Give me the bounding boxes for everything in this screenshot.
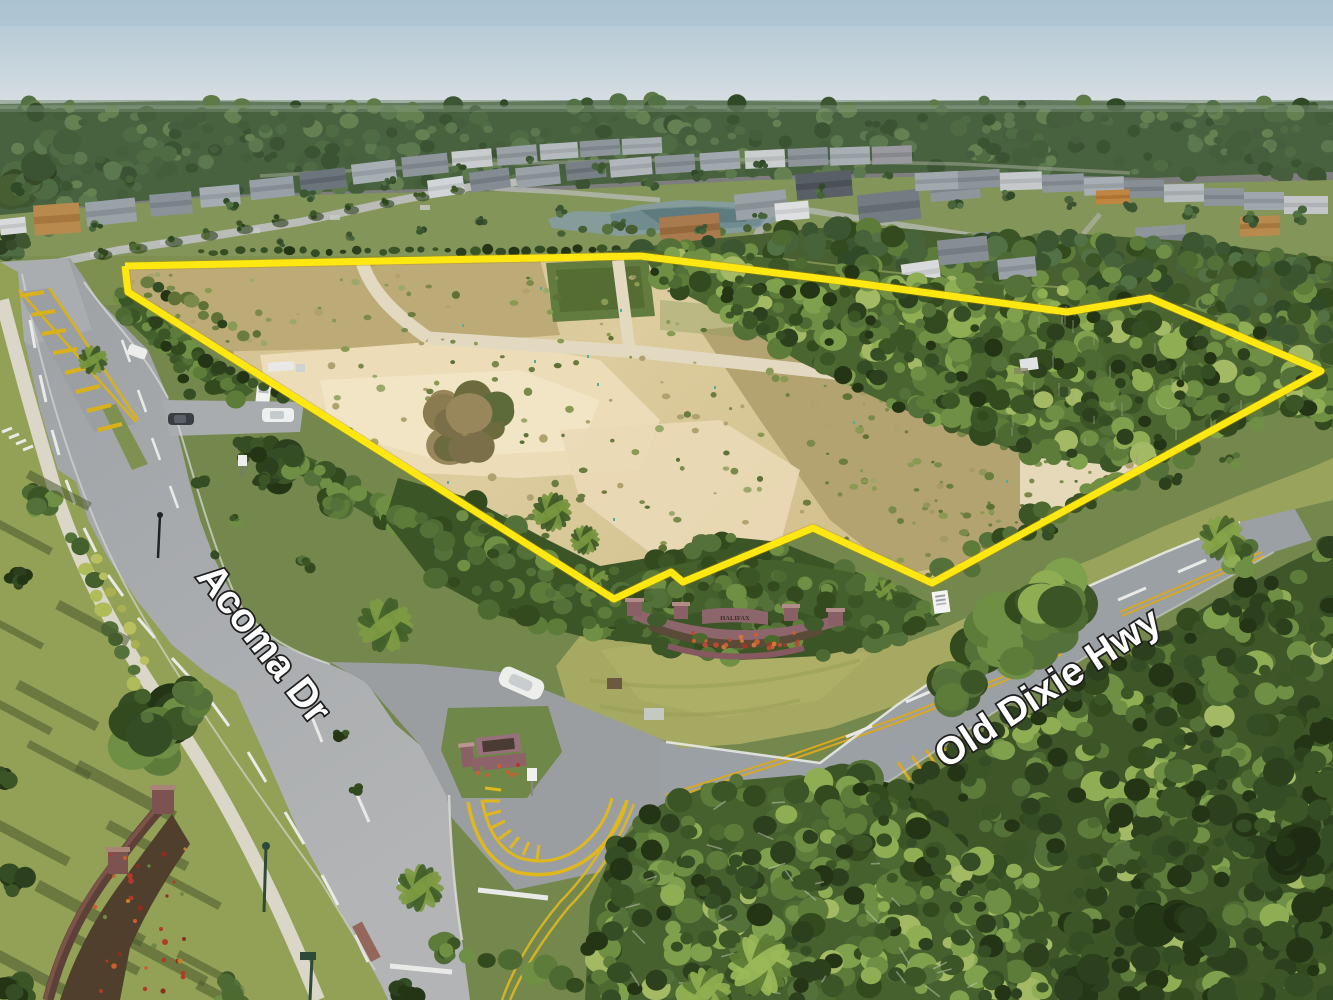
svg-text:HALIFAX: HALIFAX	[720, 615, 750, 622]
